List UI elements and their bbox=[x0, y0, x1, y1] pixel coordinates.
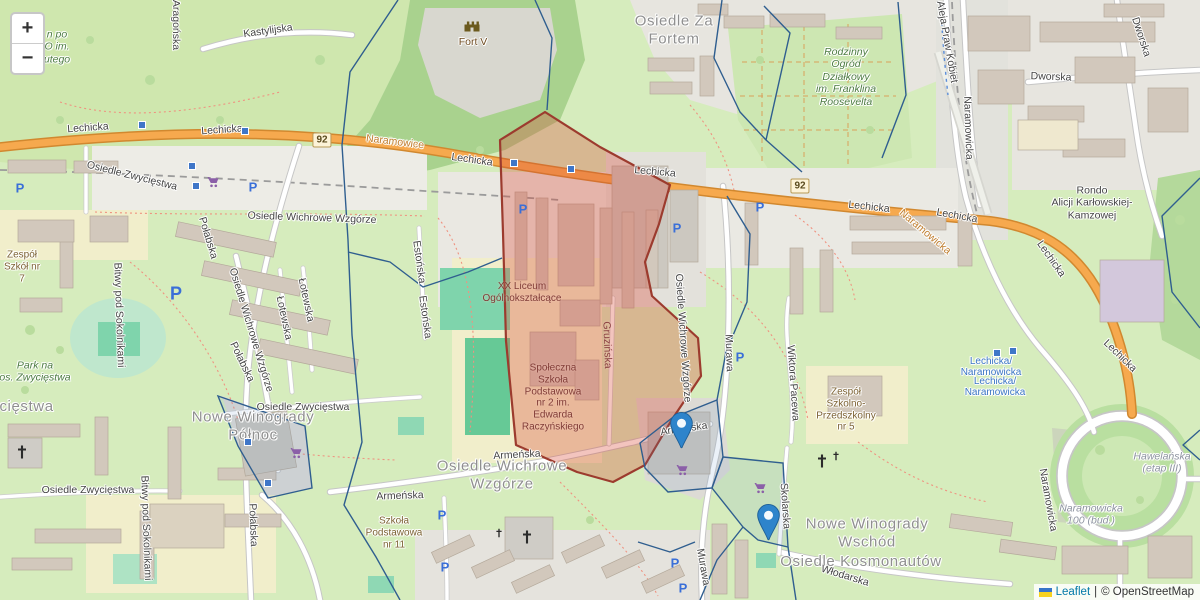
leaflet-link[interactable]: Leaflet bbox=[1056, 586, 1091, 598]
attribution-bar: Leaflet | © OpenStreetMap bbox=[1034, 584, 1200, 600]
map-tiles bbox=[0, 0, 1200, 600]
openstreetmap-link[interactable]: © OpenStreetMap bbox=[1101, 586, 1194, 598]
zoom-out-button[interactable]: − bbox=[12, 44, 43, 73]
zoom-in-button[interactable]: + bbox=[12, 14, 43, 44]
ukraine-flag-icon bbox=[1039, 588, 1052, 597]
attribution-separator: | bbox=[1094, 586, 1097, 598]
map-viewport[interactable]: Osiedle Za FortemNowe Winogrady PółnocOs… bbox=[0, 0, 1200, 600]
zoom-control: + − bbox=[10, 12, 45, 75]
